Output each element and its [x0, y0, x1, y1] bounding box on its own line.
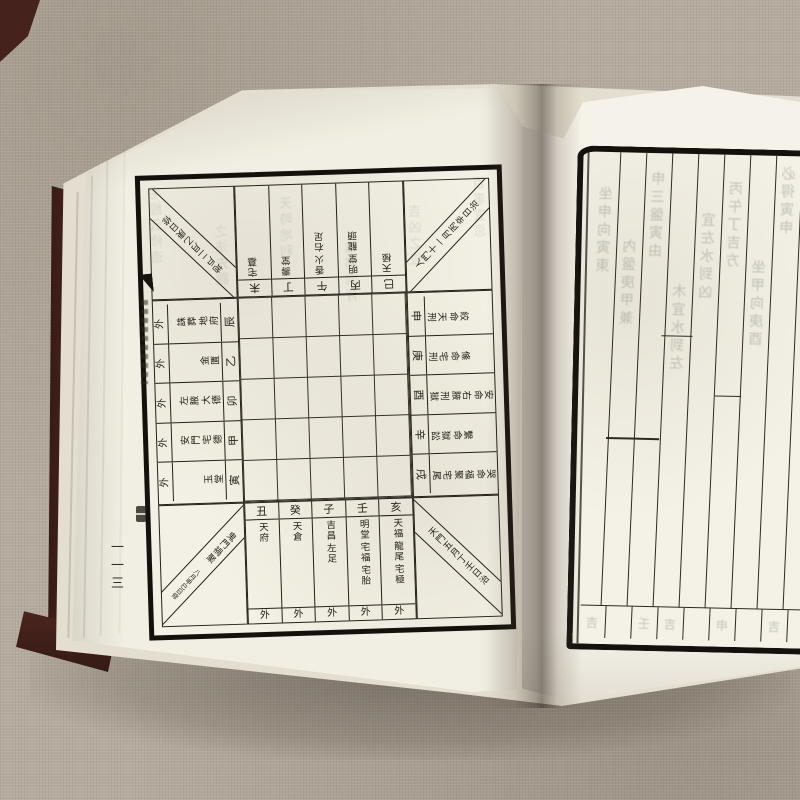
- table-cell: [787, 610, 800, 643]
- term-list: 香火右足: [302, 184, 337, 278]
- chart-column: 宅尾福聚哭命戌: [413, 451, 498, 493]
- banxin-small-mark: [136, 506, 146, 522]
- term-label: 右腋: [451, 388, 472, 398]
- chart-column: 未宅墓: [235, 186, 272, 297]
- table-cell: 吉: [657, 607, 684, 640]
- term-list: 大德左腋: [170, 381, 223, 421]
- cell-text: 壬: [638, 614, 651, 631]
- term-label: 天府: [257, 522, 267, 543]
- chart-column: 午香火右足: [302, 184, 339, 295]
- branch-label: 丙: [339, 275, 372, 293]
- left-band-rotated: 外玉堂寅外宅德安門甲外大德左腋卯外金匱乙外地府誅葬辰: [153, 302, 243, 502]
- chart-corner-bottom-right: 天門五月丁壬日治: [413, 495, 503, 620]
- right-band-rotated: 天刑絞命申宅刑絛命庚刑獄右腋安命酉獄訟繫命辛宅尾福聚哭命戌: [408, 294, 498, 494]
- book-cover-corner: [0, 0, 40, 62]
- term-list: 金匱: [169, 342, 222, 382]
- page-number: 一一三: [106, 540, 125, 594]
- term-label: 天極: [383, 252, 393, 273]
- branch-label: 巳: [372, 274, 405, 292]
- term-label: 宅尾: [431, 468, 452, 478]
- term-label: 誅葬: [176, 318, 197, 328]
- branch-label: 寅: [225, 460, 243, 499]
- branch-label: 辛: [411, 415, 429, 454]
- term-label: 福聚: [453, 467, 474, 477]
- branch-label: 戌: [413, 454, 431, 493]
- chart-column: 癸天倉外: [278, 501, 315, 622]
- term-list: 天刑絞命: [425, 294, 493, 335]
- chart-column: 宅刑絛命庚: [409, 332, 494, 374]
- branch-label: 未: [238, 279, 271, 297]
- term-list: 明堂龍頭: [336, 183, 371, 277]
- term-label: 宅極: [393, 564, 403, 585]
- book-photo: 宅經云修造之法先觀天時地利陰陽向背吉凶之位百事宜忌 地戶二月乙庚日修 巳天極丙明…: [0, 0, 800, 800]
- bottom-band: 丑天府外癸天倉外子吉昌左足外壬明堂宅福宅胎外亥天福龍尾宅極外: [245, 498, 416, 623]
- corner-diagonal-label: 地戶二月乙庚日修: [148, 186, 237, 301]
- term-list: 天倉: [279, 518, 314, 607]
- corner-diagonal-label: 鬼門禍聚 八月甲巳日修: [158, 503, 248, 628]
- term-list: 宅尾福聚哭命: [430, 452, 498, 493]
- table-cell: 吉: [761, 610, 788, 643]
- term-label: 地府: [198, 317, 219, 327]
- term-label: 吉昌: [324, 520, 334, 541]
- top-band-rotated: 巳天極丙明堂龍頭午香火右足丁壽堂未宅墓: [235, 181, 405, 296]
- cell-text: 吉: [768, 617, 781, 634]
- term-label: 宅墓: [249, 256, 259, 277]
- term-list: 天福龍尾宅極: [380, 515, 415, 604]
- term-label: 右足: [315, 231, 325, 252]
- chart-column: 獄訟繫命辛: [411, 411, 496, 453]
- outer-label: 外: [158, 462, 174, 501]
- left-page-frame: 宅經云修造之法先觀天時地利陰陽向背吉凶之位百事宜忌 地戶二月乙庚日修 巳天極丙明…: [135, 164, 516, 640]
- table-cell: [605, 606, 632, 639]
- chart-column: 子吉昌左足外: [311, 500, 348, 621]
- chart-corner-bottom-left: 鬼門禍聚 八月甲巳日修: [158, 503, 248, 628]
- term-list: 獄訟繫命: [428, 412, 496, 453]
- chart-column: 亥天福龍尾宅極外: [378, 498, 415, 619]
- chart-band-left: 外玉堂寅外宅德安門甲外大德左腋卯外金匱乙外地府誅葬辰: [152, 298, 244, 506]
- term-label: 天福: [392, 518, 402, 539]
- term-list: 地府誅葬: [168, 302, 221, 342]
- corner-diagonal-label: 天門五月丁壬日治: [413, 497, 503, 617]
- table-cell: [683, 608, 710, 641]
- chart-column: 外大德左腋卯: [155, 381, 240, 423]
- table-cell: 壬: [631, 607, 658, 640]
- chart-column: 丙明堂龍頭: [336, 183, 373, 294]
- branch-label: 亥: [379, 498, 412, 516]
- outer-label: 外: [282, 606, 315, 622]
- chart-center-grid: [238, 292, 413, 502]
- branch-label: 辰: [220, 302, 238, 341]
- outer-label: 外: [155, 383, 171, 422]
- term-label: 天倉: [291, 521, 301, 542]
- term-label: 大德: [201, 396, 222, 406]
- corner-text: 鬼門禍聚: [203, 529, 238, 565]
- term-label: 繫命: [452, 428, 473, 438]
- outer-label: 外: [248, 607, 281, 623]
- table-cell: 申: [709, 608, 736, 641]
- term-label: 宅刑: [427, 349, 448, 359]
- cell-text: 申: [716, 616, 729, 633]
- right-page-frame: 坐申向寅東內盤庚甲兼申三盤寅由木宜水到左宜左水到凶丙午丁吉方坐甲向庚酉必得寅申宜…: [566, 145, 800, 654]
- chart-column: 巳天極: [370, 181, 406, 292]
- corner-small-text: 八月甲巳日修: [169, 567, 202, 601]
- chart-column: 壬明堂宅福宅胎外: [345, 499, 382, 620]
- branch-label: 子: [312, 500, 345, 518]
- chart-corner-top-left: 地戶二月乙庚日修: [148, 186, 237, 301]
- branch-label: 酉: [410, 375, 428, 414]
- branch-label: 申: [408, 296, 426, 335]
- corner-text: 人門十一月丙辛日治: [413, 199, 482, 271]
- term-label: 龍頭: [349, 230, 359, 251]
- term-list: 宅德安門: [172, 421, 225, 461]
- term-list: 吉昌左足: [313, 517, 348, 606]
- branch-label: 午: [305, 277, 338, 295]
- corner-text: 天門五月丁壬日治: [425, 526, 490, 588]
- branch-label: 庚: [409, 335, 427, 374]
- right-page-columns: 坐申向寅東內盤庚甲兼申三盤寅由木宜水到左宜左水到凶丙午丁吉方坐甲向庚酉必得寅申宜…: [576, 152, 800, 611]
- outer-label: 外: [316, 605, 349, 621]
- term-list: 天府: [246, 520, 281, 609]
- term-label: 左腋: [179, 397, 200, 407]
- outer-label: 外: [383, 603, 416, 619]
- chart-column: 刑獄右腋安命酉: [410, 372, 495, 414]
- term-list: 刑獄右腋安命: [427, 373, 495, 414]
- branch-label: 丁: [272, 278, 305, 296]
- term-list: 宅刑絛命: [426, 333, 494, 374]
- outer-label: 外: [157, 423, 173, 462]
- cell-text: 吉: [664, 615, 677, 632]
- chart-band-top: 巳天極丙明堂龍頭午香火右足丁壽堂未宅墓: [234, 180, 406, 297]
- right-page-bottom-row: 吉壬吉申吉: [579, 604, 800, 642]
- term-label: 獄訟: [430, 428, 451, 438]
- term-label: 明堂: [358, 519, 368, 540]
- branch-label: 癸: [279, 501, 312, 519]
- term-list: 明堂宅福宅胎: [346, 516, 381, 605]
- term-label: 玉堂: [203, 475, 224, 485]
- term-label: 宅福: [359, 542, 369, 563]
- chart-column: 外金匱乙: [154, 341, 239, 383]
- term-label: 哭命: [475, 467, 496, 477]
- term-label: 宅德: [202, 436, 223, 446]
- chart-column: 丑天府外: [245, 503, 281, 624]
- corner-diagonal-label: 人門十一月丙辛日治: [403, 178, 492, 293]
- term-label: 左足: [325, 543, 335, 564]
- outer-label: 外: [154, 344, 170, 383]
- corner-text: 地戶二月乙庚日修: [160, 212, 225, 274]
- chart-column: 外地府誅葬辰: [153, 302, 238, 344]
- chart-band-bottom: 丑天府外癸天倉外子吉昌左足外壬明堂宅福宅胎外亥天福龍尾宅極外: [244, 497, 417, 624]
- term-label: 絞命: [448, 309, 469, 319]
- term-list: 壽堂: [269, 185, 304, 279]
- term-label: 天刑: [426, 310, 447, 320]
- branch-label: 甲: [224, 420, 242, 459]
- branch-label: 卯: [222, 381, 240, 420]
- term-label: 明堂: [350, 253, 360, 274]
- branch-label: 壬: [346, 499, 379, 517]
- term-label: 宅胎: [359, 565, 369, 586]
- branch-label: 乙: [221, 341, 239, 380]
- term-list: 宅墓: [235, 186, 270, 280]
- term-label: 安命: [473, 387, 494, 397]
- chart-column: 外玉堂寅: [158, 460, 243, 501]
- term-label: 壽堂: [283, 255, 293, 276]
- outer-label: 外: [349, 604, 382, 620]
- term-label: 絛命: [449, 349, 470, 359]
- cell-text: 吉: [586, 613, 599, 630]
- table-cell: 吉: [579, 605, 606, 638]
- banxin-title-marks: [141, 300, 148, 384]
- term-label: 刑獄: [429, 389, 450, 399]
- table-cell: [735, 609, 762, 642]
- chart-column: 天刑絞命申: [408, 294, 493, 335]
- branch-label: 丑: [245, 503, 278, 521]
- term-list: 玉堂: [173, 461, 226, 501]
- term-label: 香火: [316, 254, 326, 275]
- outer-label: 外: [153, 304, 169, 343]
- term-list: 天極: [370, 181, 405, 275]
- geomancy-chart: 地戶二月乙庚日修 巳天極丙明堂龍頭午香火右足丁壽堂未宅墓 人門十一月丙辛日治 外…: [148, 178, 503, 627]
- chart-column: 外宅德安門甲: [157, 420, 242, 462]
- chart-band-right: 天刑絞命申宅刑絛命庚刑獄右腋安命酉獄訟繫命辛宅尾福聚哭命戌: [407, 290, 499, 498]
- term-label: 安門: [180, 436, 201, 446]
- chart-column: 丁壽堂: [269, 185, 306, 296]
- term-label: 金匱: [200, 356, 221, 366]
- term-label: 龍尾: [392, 541, 402, 562]
- chart-corner-top-right: 人門十一月丙辛日治: [403, 178, 492, 293]
